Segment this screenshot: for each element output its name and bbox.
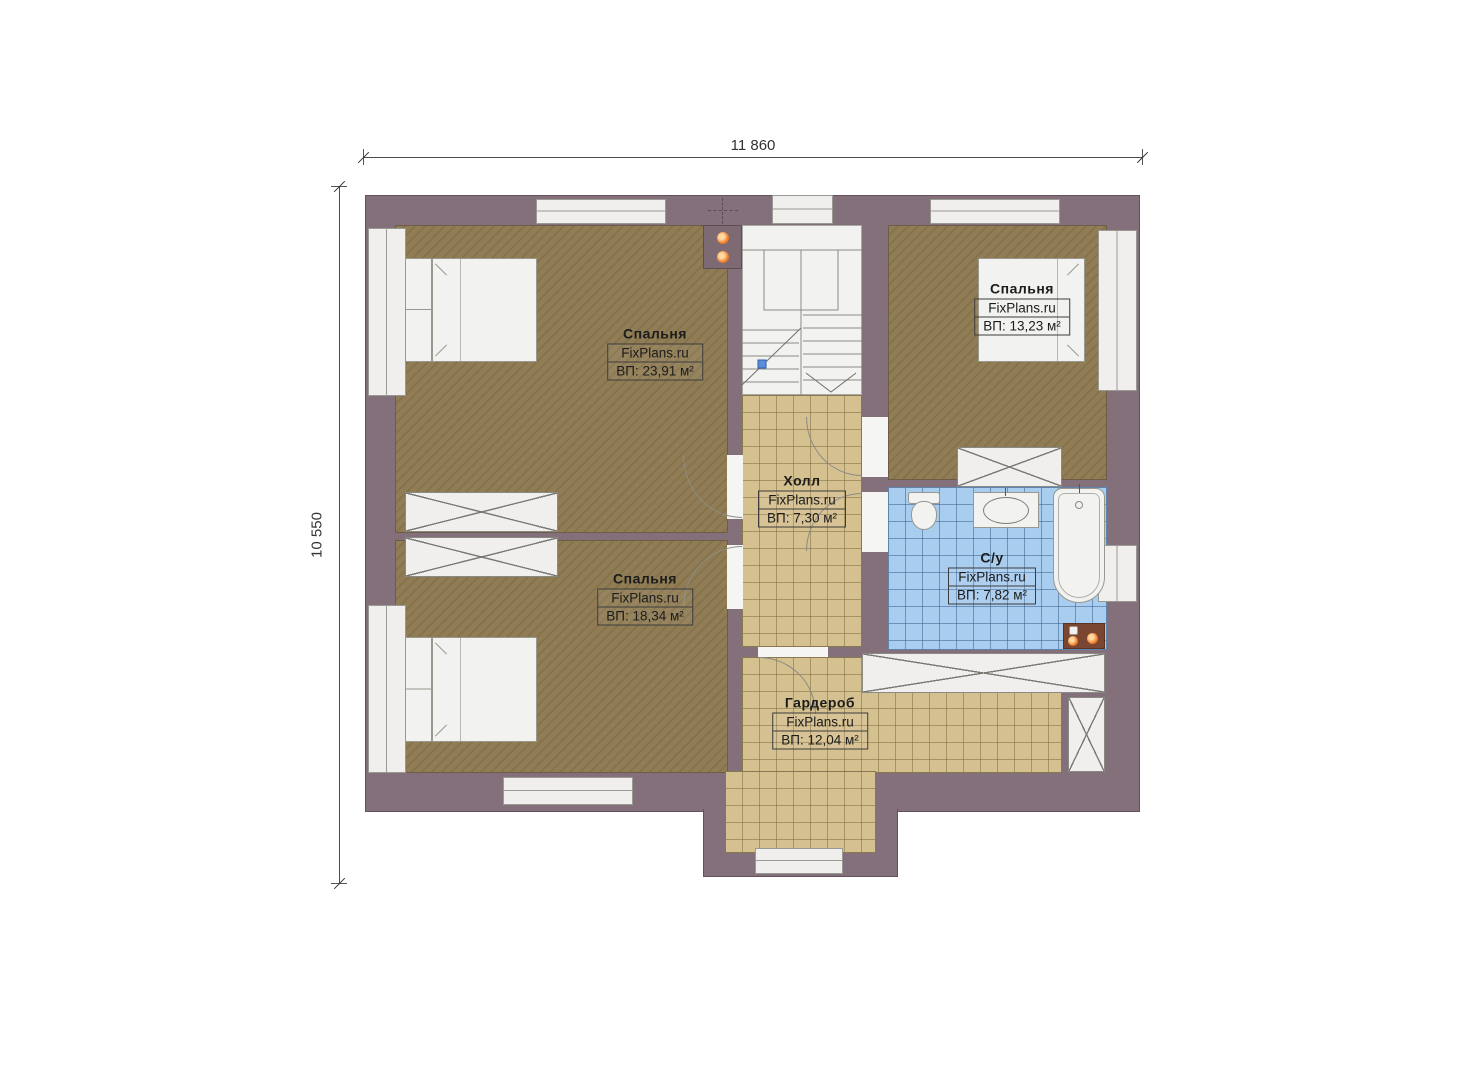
dimension-left-label: 10 550 [309, 512, 326, 558]
brand-watermark: FixPlans.ru [773, 714, 867, 731]
flue-mark-vertical [722, 198, 723, 224]
window-bay-bottom [755, 848, 843, 874]
dimension-left: 10 550 [339, 186, 340, 884]
nightstands-bedroom-bottom-left [405, 637, 432, 742]
chimney-dot-1 [717, 232, 729, 244]
room-name: Холл [783, 473, 820, 489]
room-name: Гардероб [785, 695, 855, 711]
dimension-top: 11 860 [363, 157, 1143, 158]
closet-symbol-square [1068, 697, 1105, 772]
window-bedroom-bottom-left-bottom [503, 777, 633, 805]
room-label-bedroom-top-left: Спальня FixPlans.ru ВП: 23,91 м² [607, 326, 703, 381]
window-stair-bay [772, 195, 833, 224]
window-bedroom-top-left [536, 199, 666, 224]
door-gap-bathroom [862, 492, 888, 552]
bed-top-left-pillow-line [460, 259, 461, 361]
door-gap-bedroom-top-right [862, 417, 888, 477]
chimney-dot-2 [717, 251, 729, 263]
dimension-top-label: 11 860 [731, 137, 776, 154]
flue-mark-horizontal [708, 210, 738, 211]
room-label-hall: Холл FixPlans.ru ВП: 7,30 м² [758, 473, 846, 528]
stairwell-floor [742, 225, 862, 395]
room-label-bedroom-top-right: Спальня FixPlans.ru ВП: 13,23 м² [974, 281, 1070, 336]
room-label-wardrobe: Гардероб FixPlans.ru ВП: 12,04 м² [772, 695, 868, 750]
nightstands-bedroom-top-left [405, 258, 432, 362]
brand-watermark: FixPlans.ru [949, 569, 1035, 586]
bed-symbol-bedroom-bottom-left [432, 637, 537, 742]
sink-basin-symbol [983, 497, 1029, 524]
dimension-left-line [339, 186, 340, 884]
room-name: Спальня [623, 326, 687, 342]
wardrobe-symbol-bedroom-bottom-left [405, 537, 558, 577]
brand-watermark: FixPlans.ru [759, 492, 845, 509]
brand-watermark: FixPlans.ru [975, 300, 1069, 317]
window-bedroom-top-right-side [1098, 230, 1137, 391]
room-area: ВП: 13,23 м² [975, 317, 1069, 335]
room-name: Спальня [613, 571, 677, 587]
brand-watermark: FixPlans.ru [598, 590, 692, 607]
window-bedroom-top-left-side [368, 228, 406, 396]
dimension-top-line [363, 157, 1143, 158]
room-label-box: FixPlans.ru ВП: 7,30 м² [758, 491, 846, 528]
room-label-bathroom: С/у FixPlans.ru ВП: 7,82 м² [948, 550, 1036, 605]
room-area: ВП: 18,34 м² [598, 607, 692, 625]
bed-symbol-bedroom-top-left [432, 258, 537, 362]
room-name: Спальня [990, 281, 1054, 297]
floor-plan-page: 11 860 10 550 [0, 0, 1474, 1080]
room-label-box: FixPlans.ru ВП: 12,04 м² [772, 713, 868, 750]
room-name: С/у [980, 550, 1003, 566]
sink-tap-mark [1005, 488, 1006, 496]
bed-bottom-left-pillow-line [460, 638, 461, 741]
window-bedroom-bottom-left-side [368, 605, 406, 773]
room-area: ВП: 23,91 м² [608, 362, 702, 380]
room-label-box: FixPlans.ru ВП: 13,23 м² [974, 299, 1070, 336]
room-area: ВП: 12,04 м² [773, 731, 867, 749]
door-gap-wardrobe [758, 647, 828, 657]
building-plan: Спальня FixPlans.ru ВП: 23,91 м² Спальня… [365, 195, 1140, 877]
bathtub-tap-mark [1079, 484, 1080, 493]
room-label-box: FixPlans.ru ВП: 18,34 м² [597, 589, 693, 626]
bathtub-symbol [1053, 488, 1105, 603]
wardrobe-symbol-bedroom-top-left [405, 492, 558, 532]
room-label-box: FixPlans.ru ВП: 7,82 м² [948, 568, 1036, 605]
closet-symbol-long [862, 653, 1105, 693]
towel-warmer-dot-1 [1068, 636, 1078, 646]
toilet-bowl-symbol [911, 501, 937, 530]
window-bedroom-top-right [930, 199, 1060, 224]
room-wardrobe-bay-floor [725, 771, 876, 853]
room-area: ВП: 7,30 м² [759, 509, 845, 527]
wardrobe-symbol-bedroom-top-right [957, 447, 1062, 487]
room-label-box: FixPlans.ru ВП: 23,91 м² [607, 344, 703, 381]
room-area: ВП: 7,82 м² [949, 586, 1035, 604]
stairs-symbol [742, 225, 862, 395]
towel-warmer-panel [1069, 626, 1078, 635]
towel-warmer-dot-2 [1087, 633, 1098, 644]
room-label-bedroom-bottom-left: Спальня FixPlans.ru ВП: 18,34 м² [597, 571, 693, 626]
bathtub-drain [1075, 501, 1083, 509]
brand-watermark: FixPlans.ru [608, 345, 702, 362]
